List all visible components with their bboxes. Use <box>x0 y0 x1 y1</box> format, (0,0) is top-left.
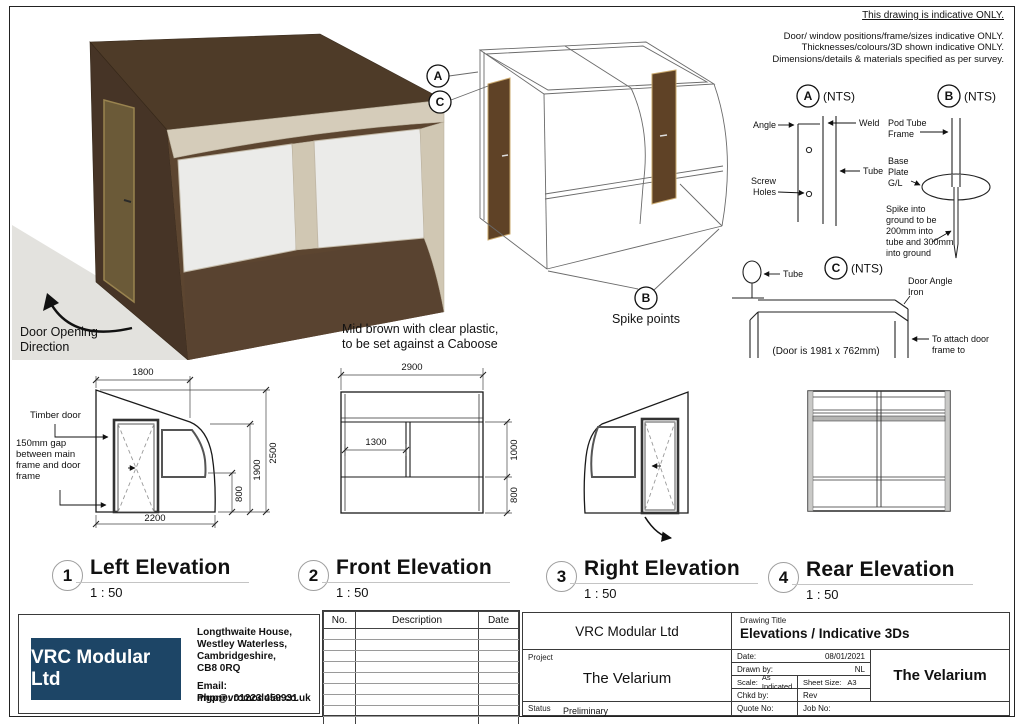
detail-a: A (NTS) Angle Weld Tube Screw Holes <box>736 84 906 262</box>
dim-1900: 1900 <box>252 459 263 480</box>
elevation-scale: 1 : 50 <box>806 585 973 602</box>
wf-right-rib <box>714 84 727 226</box>
screw-leader <box>778 192 804 193</box>
front-elevation-title: 2 Front Elevation 1 : 50 <box>298 556 510 600</box>
rev-row <box>324 651 519 662</box>
right-elevation-drawing <box>545 362 750 552</box>
elevation-scale: 1 : 50 <box>336 583 510 600</box>
elevation-title-text: Right Elevation <box>570 557 758 584</box>
elevation-title-text: Front Elevation <box>322 556 510 583</box>
pod-tube-label-2: Frame <box>888 129 914 139</box>
sheet-size-label: Sheet Size: <box>803 678 841 687</box>
titleblock-company-cell: VRC Modular Ltd <box>523 613 732 650</box>
rev-col-no: No. <box>324 612 356 629</box>
disclaimer-line: Thicknesses/colours/3D shown indicative … <box>704 42 1004 54</box>
angle-label: Angle <box>753 120 776 130</box>
project-label: Project <box>528 653 553 662</box>
disclaimer-line: Dimensions/details & materials specified… <box>704 54 1004 66</box>
revision-table-box: No. Description Date <box>322 610 520 716</box>
callout-c-label: C <box>436 95 445 109</box>
dim-1800: 1800 <box>132 367 153 378</box>
drawing-sheet: Door Opening Direction Mid brown with cl… <box>0 0 1024 724</box>
screw-hole-1 <box>806 147 811 152</box>
rev-label: Rev <box>803 691 817 700</box>
rev-row <box>324 706 519 717</box>
scale-label: Scale: <box>737 678 758 687</box>
scale-cell: Scale: As Indicated <box>732 676 798 689</box>
rail-end-slant2 <box>895 312 908 321</box>
project-name: The Velarium <box>523 670 731 687</box>
wf-roof-mullion <box>565 46 631 88</box>
screw-label-2: Holes <box>753 187 777 197</box>
pod-wireframe-view: A C B Spike points <box>424 26 744 331</box>
wf-right-door <box>652 70 676 204</box>
rev-row <box>324 640 519 651</box>
tube-section <box>743 261 761 283</box>
sheet-size-cell: Sheet Size: A3 <box>798 676 870 689</box>
front-elev-outline <box>341 392 483 513</box>
wf-rail-mid2 <box>545 171 723 199</box>
rear-gray-rail <box>813 416 945 421</box>
disclaimer-title: This drawing is indicative ONLY. <box>704 10 1004 22</box>
right-elev-window <box>591 427 635 477</box>
title-block: VRC Modular Ltd Drawing Title Elevations… <box>522 612 1010 716</box>
left-elevation-title: 1 Left Elevation 1 : 50 <box>52 556 249 600</box>
tube-label: Tube <box>863 166 883 176</box>
rev-col-description: Description <box>356 612 479 629</box>
revision-table: No. Description Date <box>323 611 519 724</box>
detail-b-nts: (NTS) <box>964 90 996 104</box>
quote-no-label: Quote No: <box>737 704 773 713</box>
drawing-title: Elevations / Indicative 3Ds <box>740 626 1009 641</box>
detail-b: B (NTS) Pod Tube Frame Base Plate G/L Sp… <box>886 84 1016 274</box>
spike-note-3: 200mm into <box>886 226 933 236</box>
dim-800-front: 800 <box>509 487 520 503</box>
company-address: Longthwaite House, Westley Waterless, Ca… <box>197 627 292 675</box>
rev-row <box>324 695 519 706</box>
rear-elev-outline <box>808 391 950 511</box>
elevation-scale: 1 : 50 <box>584 584 758 601</box>
detail-c-nts: (NTS) <box>851 262 883 276</box>
spike-note-1: Spike into <box>886 204 926 214</box>
rear-elevation-title: 4 Rear Elevation 1 : 50 <box>768 558 973 602</box>
dim-800-left: 800 <box>234 486 245 502</box>
wf-base-left <box>480 218 547 269</box>
timber-door-label: Timber door <box>30 410 81 421</box>
wf-leader-c <box>451 86 488 100</box>
date-label: Date: <box>737 652 756 661</box>
detail-c: C (NTS) Tube (Door is 1981 x 762mm) Door… <box>730 252 1015 364</box>
rev-row <box>324 662 519 673</box>
spike-note-2: ground to be <box>886 215 937 225</box>
job-no-label: Job No: <box>803 704 831 713</box>
company-logo: VRC Modular Ltd <box>31 638 181 700</box>
weld-label: Weld <box>859 118 879 128</box>
base-label-3: G/L <box>888 178 903 188</box>
pod-tube-label-1: Pod Tube <box>888 118 927 128</box>
attach-note-1: To attach door <box>932 334 989 344</box>
disclaimer: This drawing is indicative ONLY. Door/ w… <box>704 10 1004 65</box>
wf-roof <box>480 42 714 94</box>
rear-elevation-drawing <box>788 370 1008 530</box>
disclaimer-line: Door/ window positions/frame/sizes indic… <box>704 31 1004 43</box>
pod-window-right <box>314 129 425 248</box>
screw-hole-2 <box>806 191 811 196</box>
rev-row <box>324 684 519 695</box>
chkd-by-cell: Chkd by: <box>732 689 798 702</box>
titleblock-company: VRC Modular Ltd <box>575 624 679 639</box>
company-phone: Phone: 01223 459931 <box>197 693 298 705</box>
rail-left-slant <box>750 312 758 320</box>
dim-2200: 2200 <box>144 513 165 524</box>
wf-front-left-post <box>544 94 547 269</box>
wf-leader-a <box>449 72 478 76</box>
right-door-swing-arrow <box>645 517 671 538</box>
wf-base-back <box>680 184 722 226</box>
drawing-title-label: Drawing Title <box>740 616 1009 625</box>
rev-col-date: Date <box>479 612 519 629</box>
iron-leader <box>904 296 910 304</box>
wf-base-front <box>547 226 722 269</box>
date-value: 08/01/2021 <box>825 652 865 661</box>
company-logo-text: VRC Modular Ltd <box>31 647 181 691</box>
drawing-title-cell: Drawing Title Elevations / Indicative 3D… <box>732 613 1009 650</box>
spike <box>954 187 958 258</box>
front-elevation-drawing: 2900 1300 1000 800 <box>288 360 524 540</box>
elevation-scale: 1 : 50 <box>90 583 249 600</box>
drawn-by-value: NL <box>855 665 865 674</box>
door-size-note: (Door is 1981 x 762mm) <box>772 346 879 357</box>
detail-c-tag: C <box>832 261 841 275</box>
tube-label: Tube <box>783 269 803 279</box>
wf-mid-rib <box>631 88 645 224</box>
gap-note-label: 150mm gap between main frame and door fr… <box>16 438 102 482</box>
chkd-by-label: Chkd by: <box>737 691 769 700</box>
detail-b-tag: B <box>945 89 954 103</box>
wf-left-door-handle <box>502 155 508 156</box>
quote-no-cell: Quote No: <box>732 702 798 715</box>
company-info-box: VRC Modular Ltd Longthwaite House, Westl… <box>18 614 320 714</box>
callout-a-label: A <box>434 69 443 83</box>
spike-note-4: tube and 300mm <box>886 237 954 247</box>
rev-cell: Rev <box>798 689 870 702</box>
door-opening-label: Door Opening Direction <box>20 325 150 355</box>
screw-label-1: Screw <box>751 176 777 186</box>
rear-left-band <box>808 391 813 511</box>
sheet-size-value: A3 <box>847 678 856 687</box>
status-value: Preliminary <box>563 706 608 716</box>
attach-note-2: frame to <box>932 345 965 355</box>
rear-right-band <box>945 391 950 511</box>
door-angle-iron-1: Door Angle <box>908 276 953 286</box>
detail-a-tag: A <box>804 89 813 103</box>
date-row: Date: 08/01/2021 <box>732 650 870 663</box>
base-label-1: Base <box>888 156 909 166</box>
rev-row <box>324 717 519 724</box>
callout-b-label: B <box>642 291 651 305</box>
pod-3d-render <box>12 10 452 360</box>
elevation-title-text: Rear Elevation <box>792 558 973 585</box>
pod-window-mullion <box>292 141 318 250</box>
door-angle-iron-2: Iron <box>908 287 924 297</box>
drawn-by-row: Drawn by: NL <box>732 663 870 676</box>
pod-window-left <box>178 144 297 272</box>
dim-1300: 1300 <box>365 437 386 448</box>
dim-1000: 1000 <box>509 439 520 460</box>
project-cell: Project The Velarium <box>523 650 732 702</box>
wf-right-door-handle <box>660 135 667 136</box>
wf-leader-b2 <box>654 229 719 290</box>
project-big-cell: The Velarium <box>870 650 1009 702</box>
job-no-cell: Job No: <box>798 702 870 715</box>
dim-2900: 2900 <box>401 362 422 373</box>
status-cell: Status Preliminary <box>523 702 732 715</box>
detail-a-nts: (NTS) <box>823 90 855 104</box>
status-label: Status <box>528 704 551 713</box>
wf-rail-mid <box>545 166 723 194</box>
right-elevation-title: 3 Right Elevation 1 : 50 <box>546 557 758 601</box>
spike-points-label: Spike points <box>612 312 680 326</box>
elevation-title-text: Left Elevation <box>76 556 249 583</box>
rev-row <box>324 629 519 640</box>
wf-left-door <box>488 78 510 240</box>
wf-leader-b1 <box>548 271 638 289</box>
dim-2500: 2500 <box>268 442 279 463</box>
project-big: The Velarium <box>893 667 986 684</box>
base-label-2: Plate <box>888 167 909 177</box>
base-plate-leader <box>911 181 920 185</box>
rev-row <box>324 673 519 684</box>
